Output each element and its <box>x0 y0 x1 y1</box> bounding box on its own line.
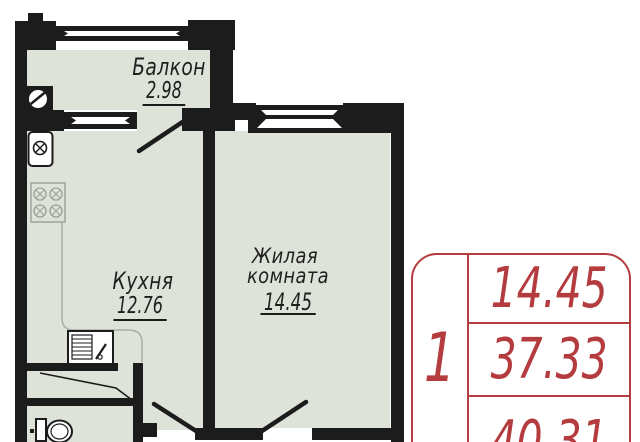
balcony-area-value: 2.98 <box>143 79 186 106</box>
rooms-count-cell: 1 <box>413 255 469 442</box>
kitchen-area-value: 12.76 <box>113 294 166 321</box>
full-area-cell: 40.31 <box>469 395 629 442</box>
apartment-info-table: 1 14.45 37.33 40.31 <box>411 253 631 442</box>
balcony-label: Балкон <box>122 55 216 79</box>
electric-box-icon <box>29 132 53 166</box>
living-room-label-line2: комната <box>240 266 337 287</box>
balcony-window <box>56 21 188 50</box>
floorplan-canvas: Балкон 2.98 Кухня 12.76 Жилая комната 14… <box>0 0 640 442</box>
balcony-name: Балкон <box>132 55 206 79</box>
full-area-value: 40.31 <box>490 414 607 442</box>
area-cells: 14.45 37.33 40.31 <box>469 255 629 442</box>
toilet-icon <box>30 419 72 442</box>
living-area-value: 14.45 <box>490 261 607 317</box>
living-room-window <box>256 103 343 133</box>
total-area-value: 37.33 <box>490 332 607 388</box>
kitchen-area: 12.76 <box>102 294 178 321</box>
total-area-cell: 37.33 <box>469 322 629 395</box>
kitchen-name: Кухня <box>113 269 174 293</box>
sink-icon <box>68 331 113 364</box>
living-room-name-1: Жилая <box>252 246 318 266</box>
living-room-area: 14.45 <box>249 292 328 315</box>
balcony-area: 2.98 <box>133 79 194 106</box>
living-area-cell: 14.45 <box>469 255 629 322</box>
kitchen-balcony-window <box>64 110 137 131</box>
stove-icon <box>31 183 65 222</box>
living-room-area-value: 14.45 <box>260 292 315 315</box>
living-room-name-2: комната <box>247 266 329 286</box>
vent-duct-icon <box>22 86 53 112</box>
rooms-count-value: 1 <box>424 327 456 391</box>
kitchen-label: Кухня <box>104 269 182 293</box>
